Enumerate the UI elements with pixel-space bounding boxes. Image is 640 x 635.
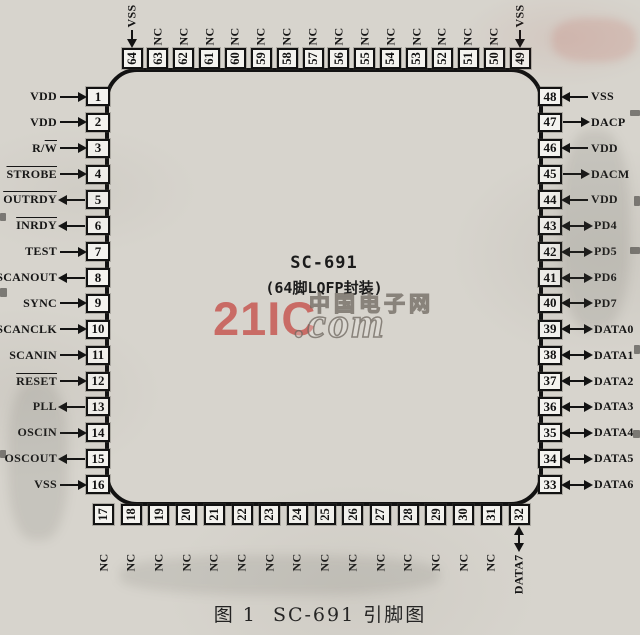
arrowhead-right-icon [78, 480, 87, 490]
pin-row-right-47: 47DACP [538, 113, 640, 132]
arrowhead-left-icon [561, 480, 570, 490]
pin-box-64: 64 [122, 48, 143, 69]
pin-number: 29 [428, 508, 443, 521]
arrowhead-right-icon [78, 117, 87, 127]
pin-box-6: 6 [86, 216, 110, 235]
pin-number: 42 [544, 244, 557, 260]
pin-box-45: 45 [538, 165, 562, 184]
pin-number: 1 [95, 89, 102, 105]
pin-label-NC: NC [306, 0, 321, 45]
pin-box-10: 10 [86, 320, 110, 339]
arrow-in-icon [59, 350, 86, 361]
pin-number: 52 [435, 52, 450, 65]
pin-label-text: SYNC [23, 296, 57, 310]
pin-label-overline: W [45, 141, 57, 155]
pin-box-2: 2 [86, 113, 110, 132]
page-bleedthrough-artifact [8, 380, 68, 540]
pin-box-62: 62 [173, 48, 194, 69]
pin-label-text: DATA4 [594, 425, 634, 439]
pin-number: 8 [95, 270, 102, 286]
pin-label-overline: INRDY [16, 218, 57, 232]
pin-box-37: 37 [538, 372, 562, 391]
arrowhead-left-icon [58, 221, 67, 231]
pin-label-text: NC [357, 27, 371, 45]
arrowhead-right-icon [78, 298, 87, 308]
pin-label-DATA2: DATA2 [594, 374, 634, 389]
pin-number: 14 [92, 425, 105, 441]
pin-box-53: 53 [406, 48, 427, 69]
pin-box-7: 7 [86, 242, 110, 261]
pin-box-46: 46 [538, 139, 562, 158]
pin-box-29: 29 [425, 504, 446, 525]
pin-number: 19 [151, 508, 166, 521]
pin-label-NC: NC [357, 0, 372, 45]
pin-label-VDD: VDD [30, 115, 57, 130]
arrow-bi-icon [562, 376, 592, 387]
pin-number: 7 [95, 244, 102, 260]
arrowhead-right-icon [78, 169, 87, 179]
pin-box-34: 34 [538, 449, 562, 468]
pin-box-16: 16 [86, 475, 110, 494]
pin-box-15: 15 [86, 449, 110, 468]
pin-number: 50 [487, 52, 502, 65]
arrow-bi-icon [562, 453, 592, 464]
pin-label-text: TEST [25, 244, 57, 258]
pin-label-SCANIN: SCANIN [9, 348, 57, 363]
pin-number: 56 [331, 52, 346, 65]
pin-label-text: NC [383, 27, 397, 45]
pin-row-right-48: 48VSS [538, 87, 640, 106]
pin-label-text: NC [331, 27, 345, 45]
pin-row-left-4: STROBE4 [0, 165, 110, 184]
arrow-in-icon [59, 376, 86, 387]
arrowhead-right-icon [78, 376, 87, 386]
arrowhead-down-icon [127, 39, 137, 48]
pin-box-21: 21 [204, 504, 225, 525]
pin-label-text: DACP [591, 115, 626, 129]
pin-number: 40 [544, 295, 557, 311]
pin-box-35: 35 [538, 423, 562, 442]
pin-box-9: 9 [86, 294, 110, 313]
pin-box-48: 48 [538, 87, 562, 106]
pin-row-right-38: 38DATA1 [538, 346, 640, 365]
pin-box-42: 42 [538, 242, 562, 261]
pin-box-26: 26 [342, 504, 363, 525]
arrowhead-down-icon [515, 39, 525, 48]
pin-label-text: NC [96, 553, 110, 571]
pin-label-text: NC [306, 27, 320, 45]
pin-number: 12 [92, 373, 105, 389]
pin-label-NC: NC [435, 0, 450, 45]
pin-box-44: 44 [538, 190, 562, 209]
arrow-in-icon [562, 91, 589, 102]
page-edge-mark [0, 450, 6, 458]
pin-label-NC: NC [150, 0, 165, 45]
pin-box-61: 61 [199, 48, 220, 69]
pin-label-VSS: VSS [513, 0, 528, 27]
arrow-bi-icon [562, 479, 592, 490]
pin-number: 23 [262, 508, 277, 521]
pin-label-text: NC [409, 27, 423, 45]
pin-number: 30 [456, 508, 471, 521]
page-edge-mark [634, 345, 640, 354]
pin-box-51: 51 [458, 48, 479, 69]
pin-number: 38 [544, 347, 557, 363]
page-edge-mark [633, 430, 640, 438]
pin-label-text: VSS [513, 4, 527, 27]
arrowhead-right-icon [584, 454, 593, 464]
pin-number: 57 [306, 52, 321, 65]
pin-label-text: NC [487, 27, 501, 45]
pin-label-NC: NC [461, 0, 476, 45]
pin-label-SCANCLK: SCANCLK [0, 322, 57, 337]
pin-row-left-7: TEST7 [0, 242, 110, 261]
pin-box-50: 50 [484, 48, 505, 69]
pin-box-33: 33 [538, 475, 562, 494]
pin-number: 16 [92, 477, 105, 493]
pin-box-60: 60 [225, 48, 246, 69]
pin-number: 2 [95, 114, 102, 130]
page-bleedthrough-artifact [120, 555, 440, 595]
pin-label-DATA3: DATA3 [594, 399, 634, 414]
pin-label-text: SCANOUT [0, 270, 57, 284]
pin-number: 25 [318, 508, 333, 521]
pin-label-SYNC: SYNC [23, 296, 57, 311]
pin-label-text: DATA6 [594, 477, 634, 491]
arrowhead-left-icon [561, 454, 570, 464]
pin-label-NC: NC [254, 0, 269, 45]
pin-number: 54 [383, 52, 398, 65]
page-edge-mark [630, 110, 640, 116]
arrowhead-right-icon [584, 350, 593, 360]
arrow-in-icon [59, 117, 86, 128]
pin-number: 3 [95, 140, 102, 156]
chip-name: SC-691 [105, 253, 543, 273]
pin-box-41: 41 [538, 268, 562, 287]
pin-box-3: 3 [86, 139, 110, 158]
pin-number: 46 [544, 140, 557, 156]
pin-number: 58 [280, 52, 295, 65]
arrowhead-left-icon [561, 92, 570, 102]
arrowhead-up-icon [514, 526, 524, 535]
pin-label-NC: NC [202, 0, 217, 45]
pin-label-overline: STROBE [7, 167, 58, 181]
pin-box-23: 23 [259, 504, 280, 525]
pin-number: 5 [95, 192, 102, 208]
arrowhead-down-icon [514, 543, 524, 552]
pin-box-47: 47 [538, 113, 562, 132]
pin-number: 24 [290, 508, 305, 521]
pin-number: 15 [92, 451, 105, 467]
arrow-in-icon [127, 29, 138, 47]
pin-box-39: 39 [538, 320, 562, 339]
pin-number: 45 [544, 166, 557, 182]
arrow-out-icon [562, 117, 589, 128]
pin-number: 20 [179, 508, 194, 521]
pin-label-text: VSS [125, 4, 139, 27]
arrow-in-icon [515, 29, 526, 47]
pin-label-text: R/ [32, 141, 45, 155]
scanned-datasheet-page: SC-691 (64脚LQFP封装) VDD1VDD2R/W3STROBE4OU… [0, 0, 640, 635]
pin-number: 9 [95, 295, 102, 311]
pin-label-DATA1: DATA1 [594, 348, 634, 363]
pin-box-5: 5 [86, 190, 110, 209]
arrowhead-right-icon [78, 350, 87, 360]
pin-label-NC: NC [228, 0, 243, 45]
pin-box-43: 43 [538, 216, 562, 235]
pin-label-DATA6: DATA6 [594, 477, 634, 492]
pin-number: 21 [207, 508, 222, 521]
pin-number: 43 [544, 218, 557, 234]
arrowhead-right-icon [584, 480, 593, 490]
pin-label-SCANOUT: SCANOUT [0, 270, 57, 285]
pin-number: 27 [373, 508, 388, 521]
pin-row-left-8: SCANOUT8 [0, 268, 110, 287]
pin-label-NC: NC [280, 0, 295, 45]
pin-label-text: NC [484, 553, 498, 571]
pin-number: 6 [95, 218, 102, 234]
pin-row-left-2: VDD2 [0, 113, 110, 132]
arrow-bi-icon [514, 527, 525, 551]
pin-number: 48 [544, 89, 557, 105]
pin-number: 11 [92, 347, 104, 363]
pin-box-49: 49 [510, 48, 531, 69]
pin-row-right-34: 34DATA5 [538, 449, 640, 468]
pin-box-40: 40 [538, 294, 562, 313]
pin-label-text: NC [150, 27, 164, 45]
pin-label-text: VSS [591, 89, 614, 103]
pin-box-11: 11 [86, 346, 110, 365]
pin-label-OUTRDY: OUTRDY [3, 192, 57, 207]
pin-box-31: 31 [481, 504, 502, 525]
pin-box-19: 19 [148, 504, 169, 525]
pin-number: 33 [544, 477, 557, 493]
pin-row-left-5: OUTRDY5 [0, 190, 110, 209]
pin-number: 61 [202, 52, 217, 65]
arrow-in-icon [59, 143, 86, 154]
pin-number: 32 [512, 508, 527, 521]
pin-row-left-1: VDD1 [0, 87, 110, 106]
page-edge-mark [634, 196, 640, 206]
arrow-out-icon [59, 194, 86, 205]
pin-label-text: DATA5 [594, 451, 634, 465]
pin-label-NC: NC [409, 0, 424, 45]
pin-label-text: NC [202, 27, 216, 45]
pin-number: 55 [357, 52, 372, 65]
pin-number: 53 [409, 52, 424, 65]
pin-label-text: VDD [30, 89, 57, 103]
pin-number: 41 [544, 270, 557, 286]
pin-label-text: DATA1 [594, 348, 634, 362]
arrowhead-left-icon [561, 324, 570, 334]
pin-number: 64 [125, 52, 140, 65]
pin-number: 10 [92, 321, 105, 337]
pin-number: 59 [254, 52, 269, 65]
arrowhead-right-icon [78, 428, 87, 438]
pin-box-59: 59 [251, 48, 272, 69]
pin-label-TEST: TEST [25, 244, 57, 259]
pin-label-text: VDD [30, 115, 57, 129]
arrow-in-icon [59, 91, 86, 102]
arrowhead-left-icon [58, 273, 67, 283]
pin-box-54: 54 [380, 48, 401, 69]
pin-number: 4 [95, 166, 102, 182]
pin-box-32: 32 [509, 504, 530, 525]
pin-box-18: 18 [121, 504, 142, 525]
pin-box-52: 52 [432, 48, 453, 69]
page-bleedthrough-artifact [552, 18, 636, 62]
pin-box-20: 20 [176, 504, 197, 525]
pin-label-text: NC [461, 27, 475, 45]
arrow-out-icon [59, 220, 86, 231]
arrowhead-left-icon [561, 376, 570, 386]
pin-row-left-10: SCANCLK10 [0, 320, 110, 339]
arrow-bi-icon [562, 427, 592, 438]
pin-row-right-36: 36DATA3 [538, 397, 640, 416]
pin-row-left-3: R/W3 [0, 139, 110, 158]
arrowhead-right-icon [584, 402, 593, 412]
pin-number: 49 [513, 52, 528, 65]
pin-number: 17 [96, 508, 111, 521]
pin-number: 62 [176, 52, 191, 65]
pin-number: 34 [544, 451, 557, 467]
pin-row-right-37: 37DATA2 [538, 372, 640, 391]
pin-number: 35 [544, 425, 557, 441]
arrow-in-icon [59, 324, 86, 335]
pin-label-text: NC [280, 27, 294, 45]
pin-number: 39 [544, 321, 557, 337]
pin-number: 18 [124, 508, 139, 521]
arrow-bi-icon [562, 350, 592, 361]
arrowhead-right-icon [78, 92, 87, 102]
pin-box-14: 14 [86, 423, 110, 442]
pin-box-58: 58 [277, 48, 298, 69]
pin-box-36: 36 [538, 397, 562, 416]
watermark-dot-com: .com [295, 303, 386, 345]
pin-label-text: NC [456, 553, 470, 571]
page-bleedthrough-artifact [560, 130, 630, 330]
pin-number: 28 [401, 508, 416, 521]
pin-box-24: 24 [287, 504, 308, 525]
arrowhead-right-icon [584, 428, 593, 438]
page-edge-mark [0, 213, 6, 221]
pin-box-57: 57 [303, 48, 324, 69]
pin-number: 51 [461, 52, 476, 65]
page-edge-mark [0, 288, 7, 297]
arrowhead-right-icon [78, 143, 87, 153]
pin-label-DATA4: DATA4 [594, 425, 634, 440]
figure-caption: 图 1 SC-691 引脚图 [0, 600, 640, 627]
arrowhead-left-icon [561, 350, 570, 360]
arrowhead-left-icon [561, 402, 570, 412]
pin-box-55: 55 [354, 48, 375, 69]
pin-box-28: 28 [398, 504, 419, 525]
pin-number: 13 [92, 399, 105, 415]
pin-box-1: 1 [86, 87, 110, 106]
pin-number: 37 [544, 373, 557, 389]
pin-box-8: 8 [86, 268, 110, 287]
pin-label-DACP: DACP [591, 115, 626, 130]
pin-number: 22 [235, 508, 250, 521]
pin-label-text: DATA3 [594, 399, 634, 413]
pin-label-text: DATA7 [512, 554, 526, 594]
arrowhead-left-icon [561, 428, 570, 438]
arrowhead-right-icon [584, 376, 593, 386]
pin-label-text: NC [254, 27, 268, 45]
pin-label-text: SCANIN [9, 348, 57, 362]
arrow-in-icon [59, 298, 86, 309]
pin-label-NC: NC [487, 0, 502, 45]
pin-row-right-35: 35DATA4 [538, 423, 640, 442]
pin-label-overline: OUTRDY [3, 192, 57, 206]
pin-number: 47 [544, 114, 557, 130]
arrow-out-icon [59, 272, 86, 283]
pin-number: 36 [544, 399, 557, 415]
pin-box-22: 22 [232, 504, 253, 525]
pin-box-4: 4 [86, 165, 110, 184]
pin-label-text: DATA2 [594, 374, 634, 388]
pin-label-text: NC [176, 27, 190, 45]
arrow-bi-icon [562, 401, 592, 412]
pin-label-VSS: VSS [591, 89, 614, 104]
pin-number: 63 [150, 52, 165, 65]
pin-row-left-11: SCANIN11 [0, 346, 110, 365]
pin-box-13: 13 [86, 397, 110, 416]
arrowhead-right-icon [78, 324, 87, 334]
pin-box-30: 30 [453, 504, 474, 525]
pin-number: 60 [228, 52, 243, 65]
arrow-in-icon [59, 246, 86, 257]
pin-number: 26 [345, 508, 360, 521]
pin-box-27: 27 [370, 504, 391, 525]
arrowhead-right-icon [78, 247, 87, 257]
pin-label-NC: NC [176, 0, 191, 45]
pin-row-left-6: INRDY6 [0, 216, 110, 235]
pin-label-DATA5: DATA5 [594, 451, 634, 466]
pin-box-56: 56 [328, 48, 349, 69]
pin-label-text: SCANCLK [0, 322, 57, 336]
pin-label-VSS: VSS [125, 0, 140, 27]
pin-label-text: NC [435, 27, 449, 45]
pin-box-12: 12 [86, 372, 110, 391]
pin-label-STROBE: STROBE [7, 167, 58, 182]
pin-row-right-33: 33DATA6 [538, 475, 640, 494]
arrowhead-left-icon [58, 195, 67, 205]
arrowhead-right-icon [581, 117, 590, 127]
pin-label-NC: NC [331, 0, 346, 45]
page-edge-mark [630, 247, 640, 254]
pin-box-25: 25 [315, 504, 336, 525]
pin-label-VDD: VDD [30, 89, 57, 104]
arrow-in-icon [59, 169, 86, 180]
pin-row-left-9: SYNC9 [0, 294, 110, 313]
pin-box-38: 38 [538, 346, 562, 365]
pin-number: 31 [484, 508, 499, 521]
pin-label-INRDY: INRDY [16, 218, 57, 233]
pin-label-text: NC [228, 27, 242, 45]
pin-label-NC: NC [383, 0, 398, 45]
pin-box-17: 17 [93, 504, 114, 525]
pin-label-R/W: R/W [32, 141, 57, 156]
pin-number: 44 [544, 192, 557, 208]
pin-box-63: 63 [147, 48, 168, 69]
